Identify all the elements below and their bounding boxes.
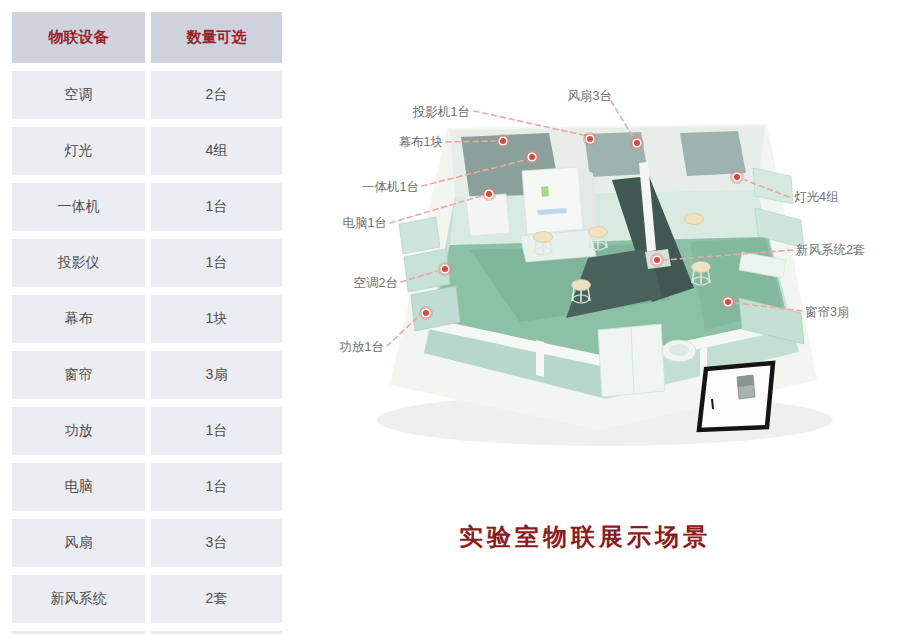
scene-caption: 实验室物联展示场景 xyxy=(430,521,740,553)
device-cell: 窗帘 xyxy=(12,351,145,399)
all-in-one-indicator xyxy=(541,186,549,197)
device-cell: 幕布 xyxy=(12,295,145,343)
label-lighting: 灯光4组 xyxy=(794,190,839,204)
partition-wall xyxy=(536,340,544,377)
quantity-cell: 1台 xyxy=(151,463,282,511)
wall-panel xyxy=(680,131,746,176)
device-table: 物联设备 数量可选 空调 2台 灯光 4组 一体机 1台 投影仪 1台 幕布 1… xyxy=(12,12,282,634)
marker-lighting xyxy=(730,170,744,184)
quantity-cell: 4组 xyxy=(151,127,282,175)
label-fan: 风扇3台 xyxy=(568,89,612,103)
device-cell: 一体机 xyxy=(12,183,145,231)
marker-curtain xyxy=(721,295,735,309)
marker-amplifier xyxy=(419,306,433,320)
marker-all-in-one xyxy=(525,150,539,164)
quantity-cell: 1台 xyxy=(151,239,282,287)
quantity-cell: 1台 xyxy=(151,407,282,455)
device-cell: 空调 xyxy=(12,71,145,119)
all-in-one-machine xyxy=(522,167,583,234)
quantity-cell: 1块 xyxy=(151,295,282,343)
marker-screen xyxy=(496,134,510,148)
entrance-door xyxy=(699,363,773,430)
marker-computer xyxy=(482,187,496,201)
marker-fresh-air xyxy=(650,253,664,267)
quantity-cell: 3台 xyxy=(151,519,282,567)
sink-bowl xyxy=(669,344,689,356)
device-cell: 新风系统 xyxy=(12,575,145,623)
label-curtain: 窗帘3扇 xyxy=(805,305,849,319)
label-computer: 电脑1台 xyxy=(343,216,387,230)
label-amplifier: 功放1台 xyxy=(339,340,384,354)
quantity-cell: 3扇 xyxy=(151,351,282,399)
label-air-conditioner: 空调2台 xyxy=(354,276,398,290)
device-cell: 功放 xyxy=(12,407,145,455)
marker-air-conditioner xyxy=(438,262,452,276)
quantity-cell: 2台 xyxy=(151,71,282,119)
label-all-in-one: 一体机1台 xyxy=(362,180,419,194)
quantity-cell: 1台 xyxy=(151,183,282,231)
lab-room-diagram: 投影机1台 风扇3台 幕布1块 一体机1台 电脑1台 空调2台 功放1台 灯光4… xyxy=(330,75,900,475)
device-cell: 电脑 xyxy=(12,463,145,511)
left-cabinet xyxy=(399,217,440,254)
room-scene-svg: 投影机1台 风扇3台 幕布1块 一体机1台 电脑1台 空调2台 功放1台 灯光4… xyxy=(330,75,900,475)
label-fresh-air: 新风系统2套 xyxy=(796,243,865,257)
marker-fan xyxy=(630,136,644,150)
front-desk xyxy=(520,230,596,262)
door-access-panel-top xyxy=(737,375,754,387)
device-cell: 风扇 xyxy=(12,519,145,567)
label-projector: 投影机1台 xyxy=(412,105,470,119)
table-header-device: 物联设备 xyxy=(12,12,145,63)
quantity-cell: 2套 xyxy=(151,575,282,623)
device-cell: 投影仪 xyxy=(12,239,145,287)
label-screen: 幕布1块 xyxy=(399,135,443,149)
device-cell: 灯光 xyxy=(12,127,145,175)
marker-projector xyxy=(583,132,597,146)
table-header-quantity: 数量可选 xyxy=(151,12,282,63)
